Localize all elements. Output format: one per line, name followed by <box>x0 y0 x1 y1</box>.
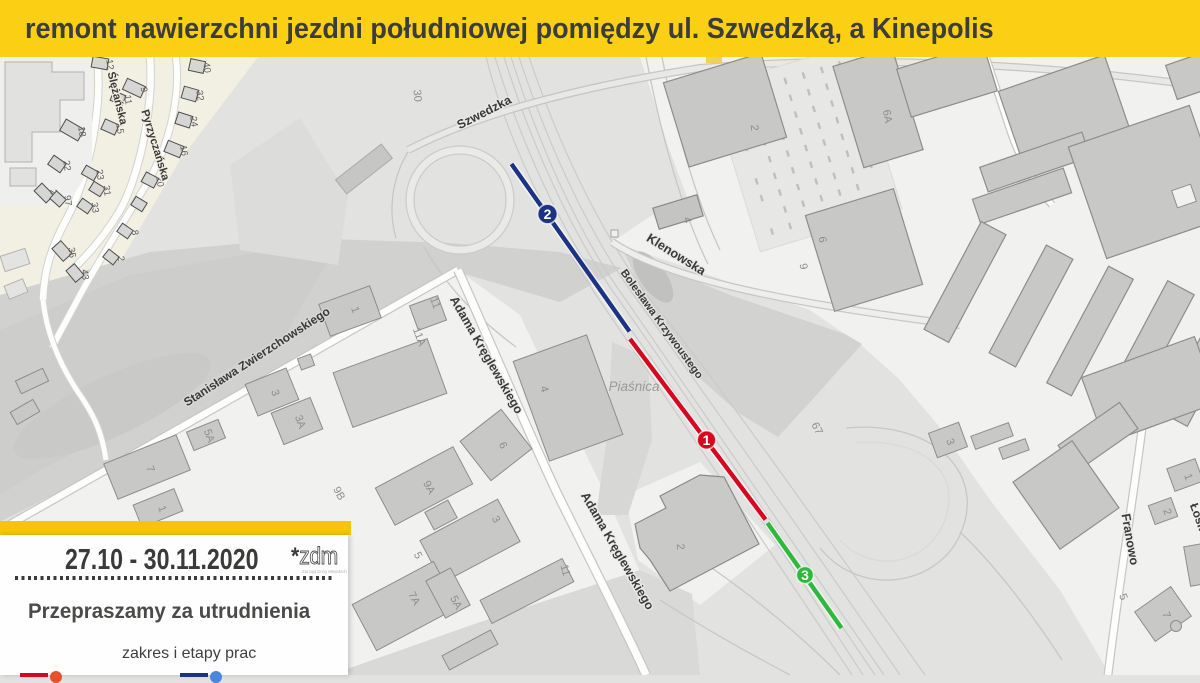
svg-text:6A: 6A <box>880 109 894 125</box>
svg-text:35: 35 <box>65 247 77 259</box>
svg-text:32: 32 <box>193 90 205 102</box>
svg-text:33: 33 <box>88 202 100 214</box>
svg-text:22: 22 <box>60 160 72 172</box>
svg-text:24: 24 <box>187 116 199 128</box>
svg-text:97: 97 <box>61 195 73 207</box>
svg-text:43: 43 <box>78 269 90 281</box>
svg-text:16: 16 <box>177 145 189 157</box>
svg-text:30: 30 <box>410 89 423 102</box>
svg-text:1: 1 <box>703 432 711 448</box>
svg-text:18: 18 <box>75 126 87 138</box>
svg-text:Piaśnica: Piaśnica <box>608 379 660 394</box>
svg-text:2: 2 <box>544 206 552 222</box>
svg-text:12: 12 <box>103 59 115 71</box>
svg-text:23: 23 <box>93 169 105 181</box>
svg-text:31: 31 <box>100 185 112 197</box>
svg-text:40: 40 <box>200 62 212 74</box>
svg-text:2: 2 <box>674 543 686 550</box>
svg-text:2: 2 <box>748 124 760 131</box>
svg-text:3: 3 <box>801 567 809 583</box>
